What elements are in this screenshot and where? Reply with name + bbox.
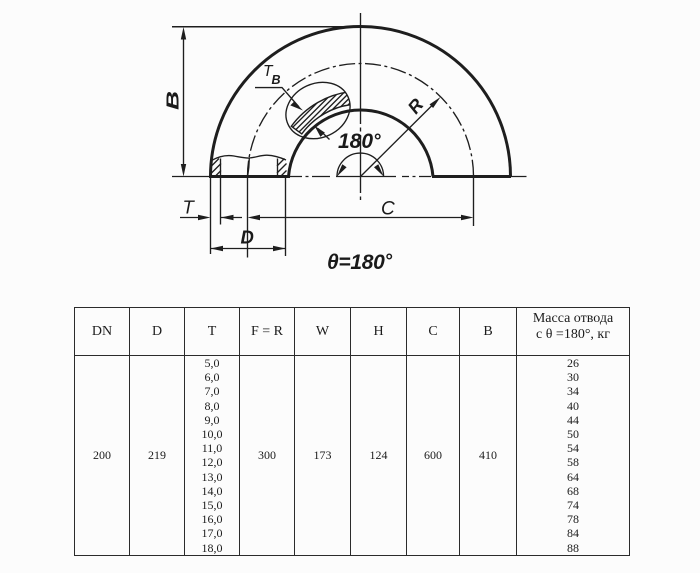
- svg-text:B: B: [272, 73, 281, 87]
- svg-text:D: D: [241, 227, 254, 248]
- svg-text:180°: 180°: [338, 130, 381, 153]
- svg-text:C: C: [381, 199, 395, 220]
- svg-text:T: T: [183, 197, 196, 218]
- svg-text:B: B: [163, 91, 183, 110]
- svg-text:θ=180°: θ=180°: [327, 251, 393, 274]
